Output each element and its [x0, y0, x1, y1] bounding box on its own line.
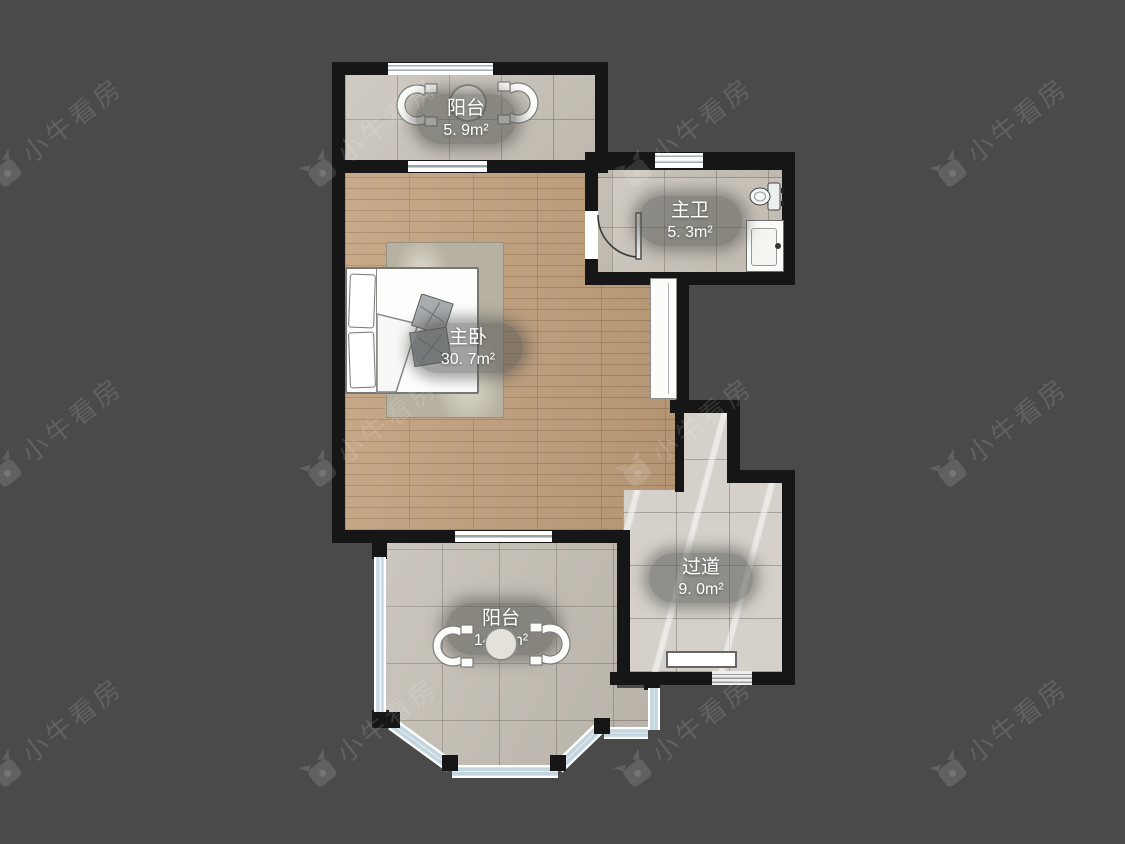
- bull-logo-icon: [0, 747, 29, 795]
- room-label-master-bathroom: 主卫 5. 3m²: [638, 196, 742, 246]
- bay-window: [360, 680, 670, 792]
- watermark-text: 小牛看房: [13, 67, 130, 170]
- watermark: 小牛看房: [926, 667, 1076, 795]
- wall: [585, 272, 795, 285]
- room-area: 5. 9m²: [443, 121, 488, 140]
- wall: [675, 402, 684, 492]
- bull-logo-icon: [927, 447, 975, 495]
- balcony-table: [484, 627, 518, 661]
- entry-door: [666, 651, 737, 668]
- wall: [372, 533, 387, 559]
- watermark: 小牛看房: [0, 667, 130, 795]
- watermark-text: 小牛看房: [958, 667, 1075, 770]
- wall: [332, 62, 345, 543]
- bull-logo-icon: [927, 147, 975, 195]
- bed-pillow: [348, 274, 376, 329]
- watermark: 小牛看房: [926, 367, 1076, 495]
- sink-basin: [751, 228, 777, 266]
- room-area: 5. 3m²: [667, 223, 712, 242]
- watermark: 小牛看房: [0, 67, 130, 195]
- window: [655, 153, 703, 168]
- watermark-text: 小牛看房: [958, 367, 1075, 470]
- entry-steps: [712, 671, 752, 685]
- toilet: [748, 180, 784, 214]
- bay-window-pane: [648, 688, 660, 730]
- wall: [676, 285, 689, 405]
- bull-logo-icon: [0, 147, 29, 195]
- side-cabinet: [650, 278, 677, 399]
- watermark: 小牛看房: [926, 67, 1076, 195]
- room-name: 过道: [682, 557, 720, 580]
- sliding-door: [455, 531, 552, 542]
- bathroom-sink: [746, 220, 784, 272]
- window: [388, 63, 493, 75]
- bed-pillow: [348, 332, 376, 389]
- watermark: 小牛看房: [0, 367, 130, 495]
- watermark-text: 小牛看房: [958, 67, 1075, 170]
- room-area: 30. 7m²: [441, 350, 495, 369]
- wall: [617, 533, 630, 685]
- watermark-text: 小牛看房: [13, 367, 130, 470]
- bull-logo-icon: [0, 447, 29, 495]
- sink-faucet: [775, 243, 781, 249]
- bay-window-pane: [452, 765, 558, 778]
- bull-logo-icon: [297, 747, 345, 795]
- room-label-balcony-top: 阳台 5. 9m²: [416, 94, 516, 144]
- room-name: 阳台: [447, 98, 485, 121]
- bull-logo-icon: [927, 747, 975, 795]
- room-label-master-bedroom: 主卧 30. 7m²: [413, 323, 523, 373]
- bay-window-pane: [604, 727, 648, 739]
- wall: [782, 470, 795, 685]
- balcony-chair: [528, 620, 572, 668]
- room-label-hallway: 过道 9. 0m²: [649, 553, 753, 603]
- sliding-door: [408, 161, 487, 172]
- room-area: 9. 0m²: [678, 580, 723, 599]
- watermark-text: 小牛看房: [13, 667, 130, 770]
- room-name: 主卫: [671, 200, 709, 223]
- balcony-chair: [431, 622, 475, 670]
- floorplan-canvas: 阳台 5. 9m² 主卫 5. 3m² 主卧 30. 7m² 过道 9. 0m²…: [0, 0, 1125, 844]
- cabinet-line: [668, 283, 669, 394]
- room-name: 主卧: [449, 327, 487, 350]
